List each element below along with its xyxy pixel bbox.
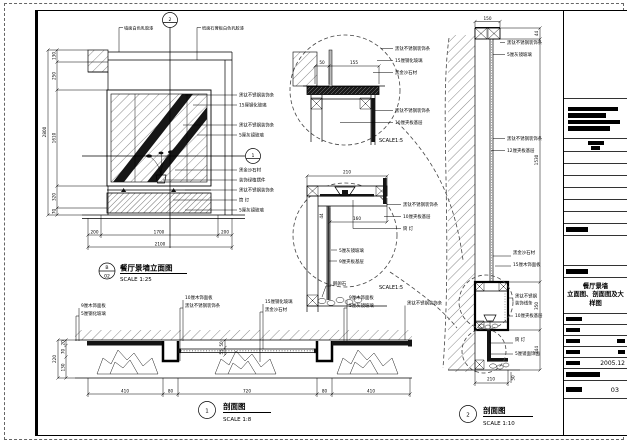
callout-label: 纸面石膏板白色乳胶漆 bbox=[202, 25, 244, 32]
callout-label: 15厘木饰面板 bbox=[513, 261, 541, 268]
elevation-title: B 02 餐厅景墙立面图 SCALE 1:25 bbox=[99, 263, 187, 283]
callout-label: 黑钛不锈钢装饰条 bbox=[239, 92, 275, 99]
dim-label: 2800 bbox=[42, 126, 47, 137]
callout-label: 5厘灰镜玻璃 bbox=[239, 132, 264, 139]
section-number: 2 bbox=[466, 413, 470, 419]
redacted-text-bar bbox=[566, 328, 580, 333]
callout-label: 15厘钢化玻璃 bbox=[395, 57, 423, 64]
callout-label: 筒 灯 bbox=[403, 225, 414, 232]
section-2-view: 150 44 1530 350 244 黑钛不锈钢装饰条 5厘灰镜玻璃 黑钛不锈… bbox=[443, 16, 543, 427]
redacted-text-bar bbox=[618, 350, 625, 355]
callout-label: 装饰线条 bbox=[515, 300, 533, 307]
drawing-canvas: 2 1 墙面白色乳胶漆 纸面石膏板白色乳胶漆 黑钛不锈钢装饰条 15厘钢化玻璃 … bbox=[35, 10, 563, 436]
pebbles bbox=[490, 363, 509, 369]
sheet-number: 03 bbox=[611, 386, 625, 394]
callout-label: 5厘灰镜玻璃 bbox=[239, 207, 264, 214]
dim-label: 1610 bbox=[52, 132, 57, 143]
title-block-row bbox=[564, 224, 627, 236]
callout-label: 15厘钢化玻璃 bbox=[239, 102, 267, 109]
detail-scale: SCALE1:5 bbox=[379, 285, 403, 291]
view-scale: SCALE 1:8 bbox=[223, 417, 252, 423]
dim-label: 80 bbox=[168, 388, 174, 393]
dim-label: 20 bbox=[61, 340, 66, 346]
callout-label: 装饰绿植摆件 bbox=[239, 177, 266, 184]
dim-label: 410 bbox=[367, 388, 375, 393]
callout-label: 5厘灰镜玻璃 bbox=[507, 51, 532, 58]
title-block-row bbox=[564, 325, 627, 336]
callout-label: 黑钛不锈钢装饰条 bbox=[507, 39, 543, 46]
title-block-date-row: 2005.12 bbox=[564, 358, 627, 369]
section-1-view: 220 20 70 130 50 55 410 80 720 80 410 9厘… bbox=[52, 294, 443, 423]
dim-label: 160 bbox=[353, 216, 361, 221]
title-block-row bbox=[564, 347, 627, 358]
redacted-text-bar bbox=[568, 120, 620, 125]
title-block-row bbox=[564, 164, 627, 176]
detail-middle: 210 160 44 黑钛不锈钢装饰条 10厘夹板基层 筒 灯 5厘灰镜玻璃 9… bbox=[293, 170, 439, 312]
dim-label: 1530 bbox=[534, 154, 539, 165]
dim-label: 1700 bbox=[154, 229, 165, 234]
title-block-row bbox=[564, 369, 627, 381]
dim-label: 250 bbox=[52, 72, 57, 80]
title-block-row bbox=[564, 236, 627, 266]
callout-label: 黑钛不锈钢装饰条 bbox=[185, 302, 221, 309]
section-number: 1 bbox=[205, 409, 209, 415]
view-bubble-letter: B bbox=[105, 265, 108, 271]
dim-label: 44 bbox=[534, 31, 539, 37]
callout-label: 黑金沙石材 bbox=[239, 167, 262, 174]
callout-label: 黑钛不锈钢装饰条 bbox=[395, 107, 431, 114]
callout-label: 9厘木饰面板 bbox=[81, 302, 106, 309]
dim-label: 350 bbox=[534, 302, 539, 310]
dim-label: 200 bbox=[221, 229, 229, 234]
redacted-text-bar bbox=[566, 269, 588, 274]
cad-sheet: 2 1 墙面白色乳胶漆 纸面石膏板白色乳胶漆 黑钛不锈钢装饰条 15厘钢化玻璃 … bbox=[0, 0, 631, 445]
redacted-text-bar bbox=[566, 227, 588, 232]
view-title: 餐厅景墙立面图 bbox=[119, 263, 173, 273]
redacted-text-bar bbox=[566, 372, 600, 377]
callout-label: 10厘夹板基层 bbox=[395, 119, 423, 126]
title-block-row bbox=[564, 314, 627, 325]
detail-scale: SCALE1:5 bbox=[379, 138, 403, 144]
dim-label: 320 bbox=[52, 193, 57, 201]
callout-label: 筒 灯 bbox=[239, 197, 250, 204]
title-block-logo-area bbox=[564, 11, 627, 99]
title-block-firm-info bbox=[564, 99, 627, 139]
section-1-title: 1 剖面图 SCALE 1:8 bbox=[199, 401, 272, 423]
callout-label: 5厘钢化玻璃 bbox=[81, 310, 106, 317]
redacted-text-bar bbox=[568, 113, 606, 118]
redacted-text-bar bbox=[566, 361, 580, 366]
title-block-row bbox=[564, 212, 627, 224]
callout-label: 黑钛不锈钢装饰条 bbox=[395, 45, 431, 52]
callout-label: 5厘灰镜玻璃 bbox=[339, 247, 364, 254]
title-block-stamp bbox=[564, 139, 627, 152]
callout-label: 黑钛不锈钢装饰条 bbox=[403, 201, 439, 208]
dim-label: 130 bbox=[61, 363, 66, 371]
callout-label: 10厘夹板基层 bbox=[403, 213, 431, 220]
redacted-text-bar bbox=[566, 387, 582, 392]
dim-label: 210 bbox=[343, 170, 351, 175]
callout-label: 10厘夹板基层 bbox=[515, 312, 543, 319]
dim-label: 155 bbox=[350, 60, 358, 65]
section-2-title: 2 剖面图 SCALE 1:10 bbox=[460, 405, 534, 427]
redacted-text-bar bbox=[568, 126, 610, 131]
detail-leader-curve bbox=[390, 272, 457, 328]
dim-label: 220 bbox=[52, 355, 57, 363]
dim-label: 50 bbox=[511, 375, 516, 381]
marker-1-number: 1 bbox=[252, 153, 255, 159]
title-block-row bbox=[564, 200, 627, 212]
dim-label: 210 bbox=[487, 377, 495, 382]
detail-top: 50 155 黑钛不锈钢装饰条 15厘钢化玻璃 黑金沙石材 黑钛不锈钢装饰条 1… bbox=[290, 35, 431, 145]
title-block-row bbox=[564, 176, 627, 188]
view-title: 剖面图 bbox=[483, 405, 506, 415]
dim-label: 50 bbox=[319, 60, 325, 65]
callout-label: 墙面白色乳胶漆 bbox=[124, 25, 153, 32]
dim-label: 130 bbox=[52, 52, 57, 60]
redacted-text-bar bbox=[617, 339, 625, 344]
drawing-title-line2: 立面图、剖面图及大样图 bbox=[566, 291, 625, 307]
dim-label: 150 bbox=[484, 16, 492, 21]
redacted-text-bar bbox=[566, 350, 580, 355]
redacted-text-bar bbox=[566, 317, 582, 322]
callout-label: 黑金沙石材 bbox=[513, 249, 536, 256]
dim-label: 200 bbox=[91, 229, 99, 234]
redacted-text-bar bbox=[591, 146, 600, 150]
redacted-text-bar bbox=[568, 107, 618, 112]
callout-label: 黑金沙石材 bbox=[265, 306, 288, 313]
elevation-view: 2 1 墙面白色乳胶漆 纸面石膏板白色乳胶漆 黑钛不锈钢装饰条 15厘钢化玻璃 … bbox=[42, 13, 275, 283]
callout-label: 9厘木饰面板 bbox=[349, 294, 374, 301]
dim-label: 70 bbox=[61, 349, 66, 355]
title-block-drawing-title: 餐厅景墙 立面图、剖面图及大样图 bbox=[564, 278, 627, 314]
dim-label: 55 bbox=[219, 349, 224, 355]
title-block-row bbox=[564, 188, 627, 200]
callout-label: 10厘木饰面板 bbox=[185, 294, 213, 301]
dim-label: 80 bbox=[322, 388, 328, 393]
callout-label: 筒 灯 bbox=[515, 336, 526, 343]
rock-cluster bbox=[337, 350, 398, 374]
redacted-text-bar bbox=[566, 339, 580, 344]
callout-label: 黑钛不锈钢装饰条 bbox=[507, 135, 543, 142]
view-scale: SCALE 1:10 bbox=[483, 421, 515, 427]
callout-label: 鹅卵石 bbox=[333, 280, 347, 287]
title-block-row bbox=[564, 336, 627, 347]
view-bubble-number: 02 bbox=[104, 274, 110, 280]
title-block-sheet-row: 03 bbox=[564, 381, 627, 399]
title-block: 餐厅景墙 立面图、剖面图及大样图 2005.12 03 bbox=[563, 10, 627, 436]
callout-label: 黑钛不锈钢装饰条 bbox=[407, 300, 443, 307]
callout-label: 黑钛不锈钢装饰条 bbox=[239, 187, 275, 194]
dim-label: 50 bbox=[219, 341, 224, 347]
dim-label: 720 bbox=[243, 388, 251, 393]
view-scale: SCALE 1:25 bbox=[120, 277, 152, 283]
dim-label: 70 bbox=[52, 209, 57, 215]
drawing-date: 2005.12 bbox=[600, 360, 625, 367]
redacted-text-bar bbox=[588, 141, 604, 146]
dim-label: 410 bbox=[121, 388, 129, 393]
view-title: 剖面图 bbox=[223, 401, 246, 411]
callout-label: 黑钛不锈钢 bbox=[515, 293, 538, 300]
callout-label: 5厘灰镜玻璃 bbox=[349, 302, 374, 309]
rock-cluster bbox=[215, 351, 276, 374]
dim-label: 44 bbox=[319, 213, 324, 219]
title-block-row bbox=[564, 399, 627, 437]
title-block-row bbox=[564, 152, 627, 164]
marker-2-number: 2 bbox=[169, 17, 172, 23]
rock-cluster bbox=[97, 350, 158, 374]
callout-label: 黑钛不锈钢装饰条 bbox=[239, 122, 275, 129]
callout-label: 12厘夹板基层 bbox=[507, 147, 535, 154]
title-block-row bbox=[564, 266, 627, 278]
callout-label: 5厘镜面饰面 bbox=[515, 350, 540, 357]
callout-label: 15厘钢化玻璃 bbox=[265, 298, 293, 305]
dim-label: 2100 bbox=[155, 241, 166, 246]
callout-label: 9厘夹板基层 bbox=[339, 258, 364, 265]
callout-label: 黑金沙石材 bbox=[395, 69, 418, 76]
